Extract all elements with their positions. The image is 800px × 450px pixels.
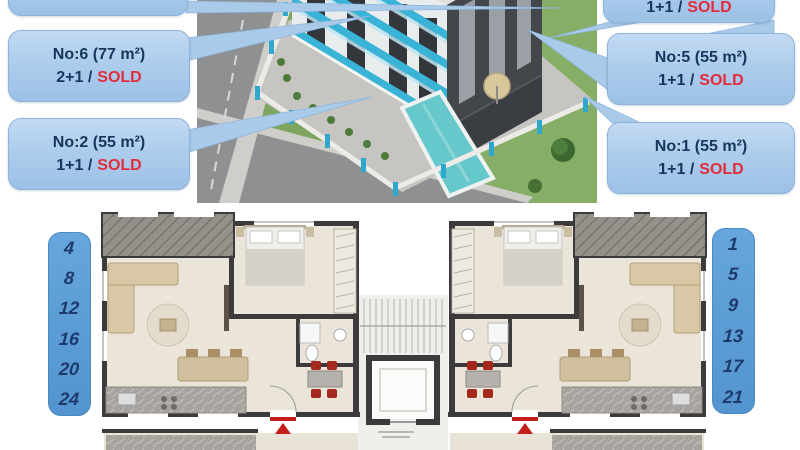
unit-number: 16 — [59, 329, 80, 350]
listing-image: No:6 (77 m²) 2+1 /SOLD No:2 (55 m²) 1+1 … — [0, 0, 800, 450]
callout-status-line: 1+1 /SOLD — [56, 154, 141, 177]
entrance-bar-icon — [270, 417, 296, 421]
callout-status-line: 1+1 /SOLD — [646, 0, 731, 19]
unit-number: 9 — [728, 295, 739, 316]
callout-top-right-partial: 1+1 /SOLD — [603, 0, 775, 23]
sold-badge: SOLD — [699, 161, 743, 178]
unit-numbers-right: 1 5 9 13 17 21 — [712, 228, 755, 414]
unit-number: 12 — [59, 298, 80, 319]
floor-plan — [98, 207, 710, 450]
callout-status-line: 1+1 /SOLD — [658, 69, 743, 92]
entrance-bar-icon — [512, 417, 538, 421]
sold-badge: SOLD — [687, 0, 731, 16]
sold-badge: SOLD — [97, 157, 141, 174]
callout-no1: No:1 (55 m²) 1+1 /SOLD — [607, 122, 795, 194]
callout-title: No:1 (55 m²) — [655, 135, 747, 158]
unit-number: 24 — [59, 389, 80, 410]
entrance-arrow-icon — [275, 423, 291, 434]
callout-no2: No:2 (55 m²) 1+1 /SOLD — [8, 118, 190, 190]
callout-no6: No:6 (77 m²) 2+1 /SOLD — [8, 30, 190, 102]
callout-status-line: 1+1 /SOLD — [658, 158, 743, 181]
unit-number: 17 — [723, 356, 744, 377]
sold-badge: SOLD — [97, 69, 141, 86]
callout-status-line: 2+1 /SOLD — [56, 66, 141, 89]
unit-number: 21 — [723, 387, 744, 408]
building-render — [197, 0, 597, 203]
callout-title: No:5 (55 m²) — [655, 46, 747, 69]
right-balcony — [574, 213, 706, 257]
sold-badge: SOLD — [699, 72, 743, 89]
entrance-arrow-icon — [517, 423, 533, 434]
callout-title: No:6 (77 m²) — [53, 43, 145, 66]
left-balcony — [102, 213, 234, 257]
callout-title: No:2 (55 m²) — [53, 131, 145, 154]
unit-number: 13 — [723, 326, 744, 347]
unit-number: 5 — [728, 264, 739, 285]
unit-numbers-left: 4 8 12 16 20 24 — [48, 232, 91, 416]
unit-number: 4 — [64, 238, 75, 259]
unit-number: 1 — [728, 234, 739, 255]
unit-number: 20 — [59, 359, 80, 380]
callout-top-left-partial — [8, 0, 188, 16]
unit-number: 8 — [64, 268, 75, 289]
callout-no5: No:5 (55 m²) 1+1 /SOLD — [607, 33, 795, 105]
